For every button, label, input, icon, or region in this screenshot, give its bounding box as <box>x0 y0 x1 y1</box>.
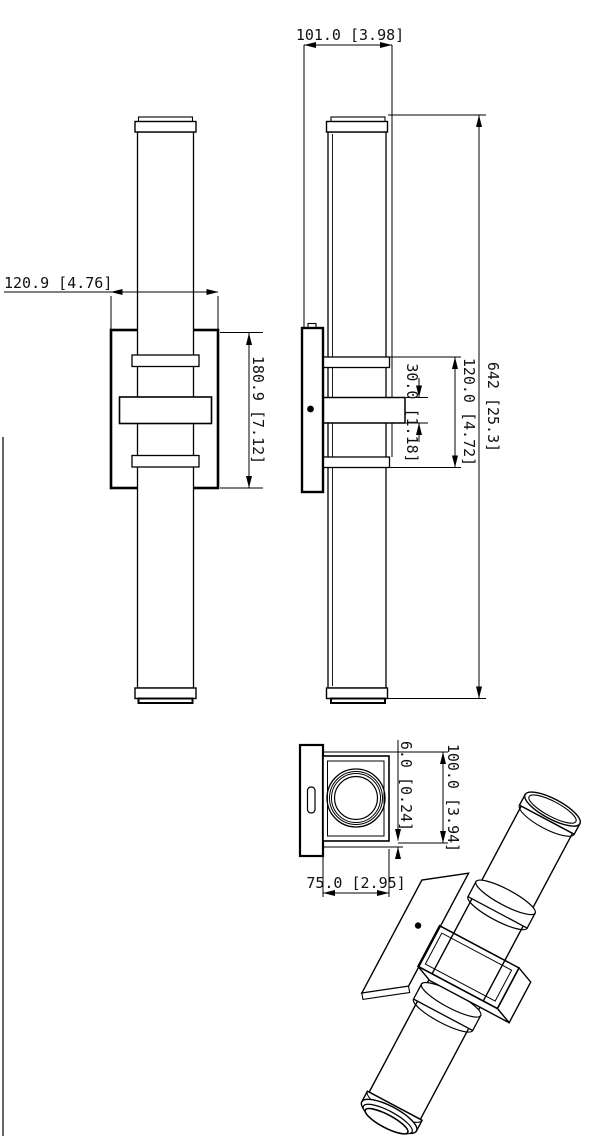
front-upper-collar <box>132 355 199 367</box>
side-bottom-cap-strip <box>331 699 385 704</box>
dim-overall-height: 642 [25.3] <box>484 362 502 452</box>
dim-overall-depth: 101.0 [3.98] <box>296 26 404 44</box>
dim-arm-thickness: 30.0 [1.18] <box>403 363 421 462</box>
dim-housing-width: 100.0 [3.94] <box>444 744 462 852</box>
drawing-canvas: 101.0 [3.98] 120.9 [4.76] 180.9 [7.12] 3… <box>0 0 600 1136</box>
side-bottom-cap <box>327 688 388 699</box>
dim-plate-height: 180.9 [7.12] <box>249 356 267 464</box>
side-lower-collar <box>324 457 390 468</box>
front-bracket <box>120 397 212 424</box>
front-bottom-cap-strip <box>139 699 193 704</box>
dimension-labels: 101.0 [3.98] 120.9 [4.76] 180.9 [7.12] 3… <box>4 26 502 892</box>
side-screw-hole <box>307 406 314 413</box>
front-top-cap <box>135 122 196 133</box>
dim-housing-depth: 75.0 [2.95] <box>306 874 405 892</box>
front-view <box>4 117 263 703</box>
top-backplate <box>300 745 323 856</box>
front-lower-collar <box>132 456 199 468</box>
dim-plate-width: 120.9 [4.76] <box>4 274 112 292</box>
dim-collar-span: 120.0 [4.72] <box>460 358 478 466</box>
technical-drawing: 101.0 [3.98] 120.9 [4.76] 180.9 [7.12] 3… <box>0 0 600 1136</box>
side-view <box>302 45 486 703</box>
side-bracket-arm <box>324 398 406 424</box>
dim-lip-offset: 6.0 [0.24] <box>397 741 415 831</box>
side-upper-collar <box>324 357 390 368</box>
front-bottom-cap <box>135 688 196 699</box>
side-top-cap <box>327 122 388 133</box>
